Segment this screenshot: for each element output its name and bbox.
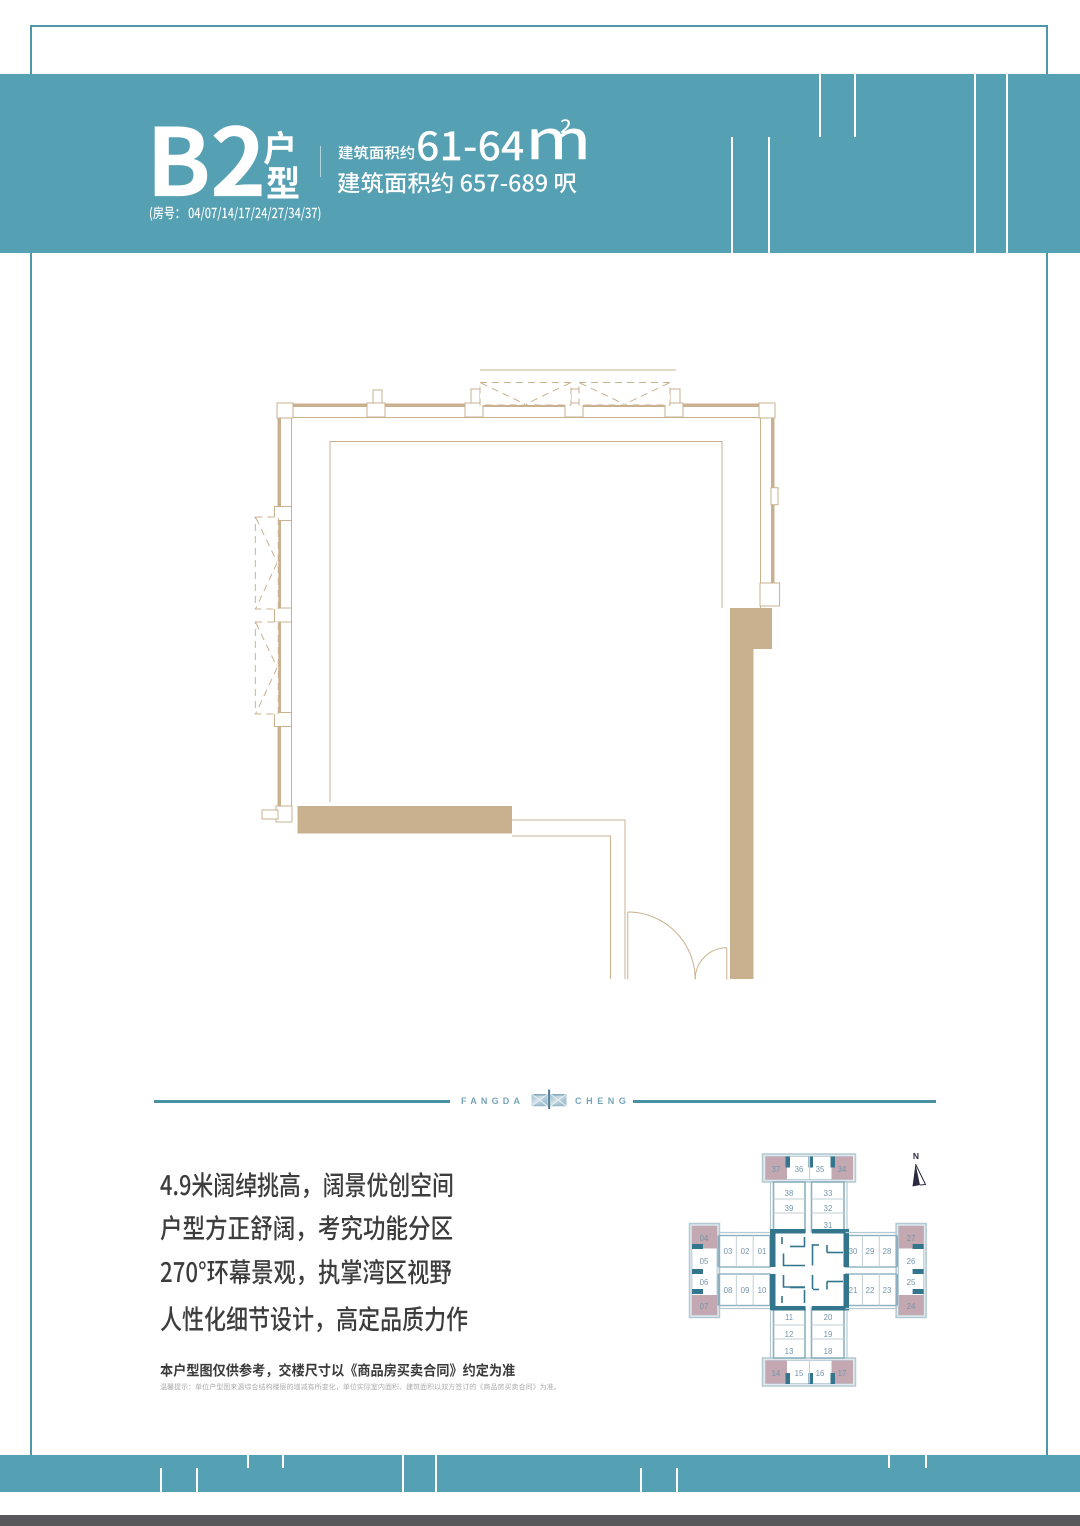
svg-text:01: 01 bbox=[758, 1247, 767, 1256]
svg-text:32: 32 bbox=[824, 1204, 833, 1213]
svg-text:37: 37 bbox=[772, 1165, 781, 1174]
svg-text:07: 07 bbox=[700, 1302, 709, 1311]
svg-text:36: 36 bbox=[795, 1165, 804, 1174]
svg-text:22: 22 bbox=[866, 1286, 875, 1295]
svg-text:30: 30 bbox=[849, 1247, 858, 1256]
svg-text:10: 10 bbox=[758, 1286, 767, 1295]
svg-text:24: 24 bbox=[907, 1302, 916, 1311]
svg-text:04: 04 bbox=[700, 1234, 709, 1243]
svg-text:35: 35 bbox=[816, 1165, 825, 1174]
svg-text:05: 05 bbox=[700, 1257, 709, 1266]
svg-text:12: 12 bbox=[785, 1330, 794, 1339]
svg-text:06: 06 bbox=[700, 1278, 709, 1287]
svg-text:39: 39 bbox=[785, 1204, 794, 1213]
svg-text:28: 28 bbox=[883, 1247, 892, 1256]
svg-text:13: 13 bbox=[785, 1347, 794, 1356]
svg-text:29: 29 bbox=[866, 1247, 875, 1256]
svg-text:11: 11 bbox=[785, 1313, 793, 1322]
svg-text:38: 38 bbox=[785, 1189, 794, 1198]
svg-text:03: 03 bbox=[724, 1247, 733, 1256]
svg-text:09: 09 bbox=[741, 1286, 750, 1295]
svg-text:27: 27 bbox=[907, 1234, 916, 1243]
svg-text:14: 14 bbox=[772, 1369, 781, 1378]
svg-text:19: 19 bbox=[824, 1330, 833, 1339]
svg-text:15: 15 bbox=[795, 1369, 804, 1378]
svg-text:33: 33 bbox=[824, 1189, 833, 1198]
svg-text:23: 23 bbox=[883, 1286, 892, 1295]
svg-text:21: 21 bbox=[849, 1286, 858, 1295]
svg-text:31: 31 bbox=[824, 1221, 833, 1230]
svg-text:26: 26 bbox=[907, 1257, 916, 1266]
svg-text:25: 25 bbox=[907, 1278, 916, 1287]
svg-text:20: 20 bbox=[824, 1313, 833, 1322]
svg-text:08: 08 bbox=[724, 1286, 733, 1295]
svg-text:N: N bbox=[913, 1151, 919, 1161]
svg-text:02: 02 bbox=[741, 1247, 750, 1256]
svg-text:18: 18 bbox=[824, 1347, 833, 1356]
svg-text:34: 34 bbox=[838, 1165, 847, 1174]
svg-text:16: 16 bbox=[816, 1369, 825, 1378]
svg-text:17: 17 bbox=[838, 1369, 847, 1378]
